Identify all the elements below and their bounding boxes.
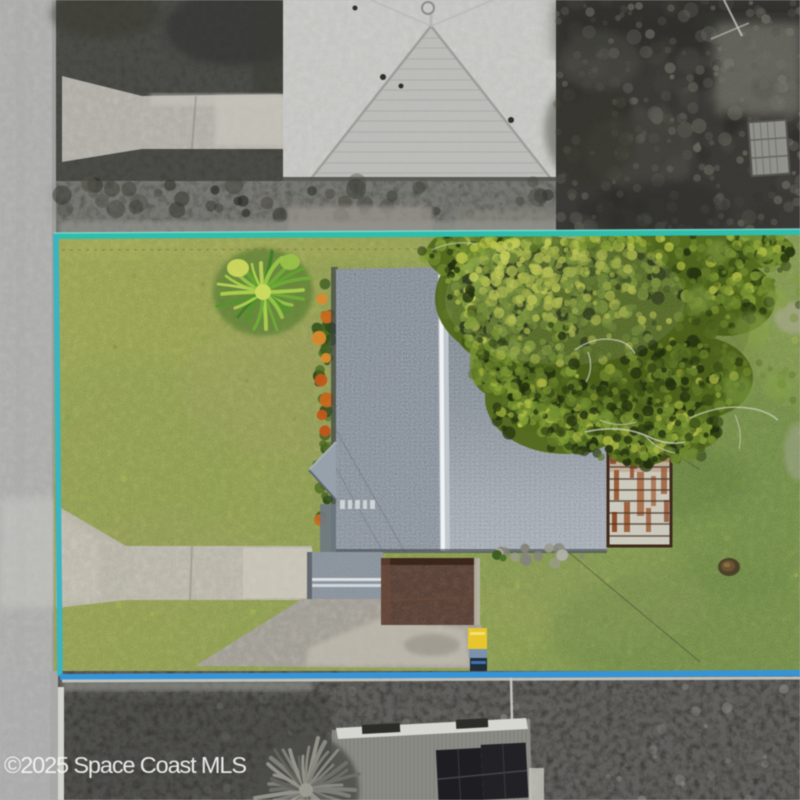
svg-text:©2025 Space Coast MLS: ©2025 Space Coast MLS [4,752,247,778]
